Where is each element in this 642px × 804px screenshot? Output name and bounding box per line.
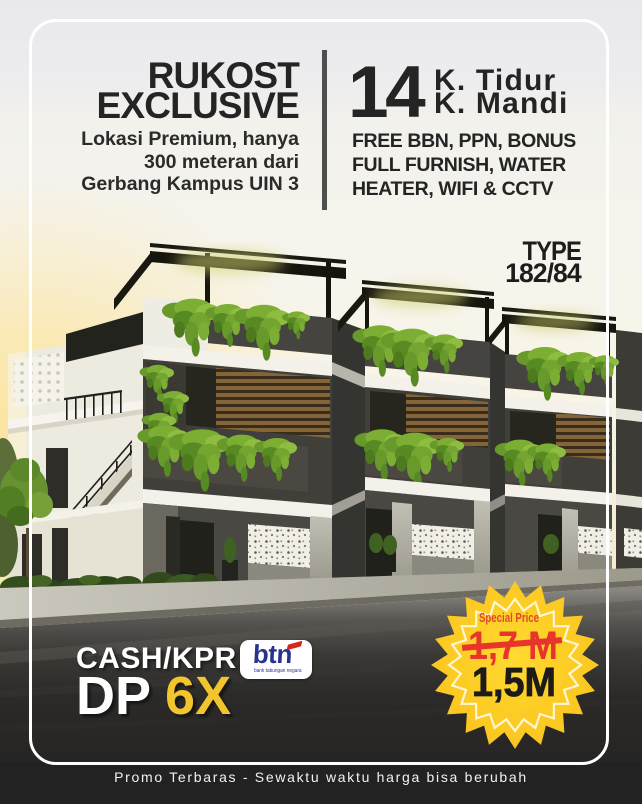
svg-text:1,5M: 1,5M [472,659,556,705]
svg-text:Special Price: Special Price [479,610,539,625]
